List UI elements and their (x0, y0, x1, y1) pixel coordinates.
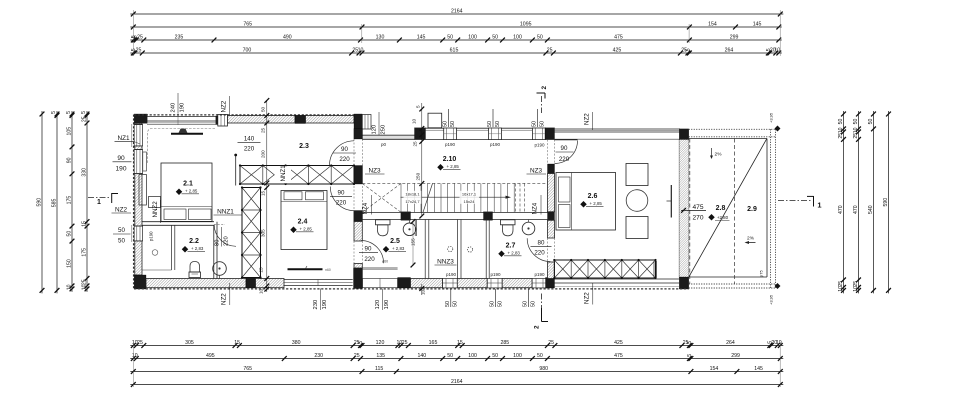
svg-text:17x24,7: 17x24,7 (405, 199, 420, 204)
svg-text:250: 250 (416, 172, 421, 180)
svg-text:10: 10 (853, 127, 859, 133)
svg-text:1: 1 (817, 201, 821, 210)
svg-text:NNZ3: NNZ3 (437, 259, 454, 266)
svg-text:190: 190 (115, 166, 126, 173)
svg-text:25: 25 (853, 281, 859, 287)
svg-text:2.6: 2.6 (588, 193, 598, 200)
svg-text:140: 140 (244, 136, 255, 143)
svg-text:p75: p75 (759, 270, 764, 277)
svg-text:2%: 2% (747, 236, 755, 242)
svg-text:270: 270 (692, 214, 703, 221)
svg-text:10: 10 (838, 286, 844, 292)
svg-text:590: 590 (36, 198, 42, 207)
svg-text:475: 475 (614, 34, 623, 40)
svg-text:1: 1 (97, 199, 101, 206)
svg-text:50: 50 (523, 301, 529, 307)
svg-text:200: 200 (261, 150, 266, 158)
svg-text:+ 2,85: + 2,85 (447, 164, 460, 169)
svg-text:540: 540 (868, 205, 874, 214)
svg-text:NNZ1: NNZ1 (217, 209, 234, 216)
svg-text:50: 50 (532, 121, 538, 127)
svg-text:16x17,1: 16x17,1 (462, 192, 477, 197)
svg-text:470: 470 (838, 205, 844, 214)
svg-text:25: 25 (137, 340, 143, 346)
svg-text:190: 190 (322, 300, 328, 310)
svg-text:2: 2 (541, 86, 548, 90)
svg-text:240: 240 (171, 103, 177, 113)
svg-text:495: 495 (206, 353, 215, 359)
svg-text:220: 220 (224, 236, 230, 246)
svg-text:120: 120 (375, 300, 381, 310)
svg-text:2.1: 2.1 (183, 181, 193, 188)
svg-text:425: 425 (614, 340, 623, 346)
svg-text:25: 25 (81, 279, 87, 285)
svg-text:50: 50 (868, 119, 874, 125)
svg-text:+ 2,83: + 2,83 (392, 246, 405, 251)
svg-text:90: 90 (561, 145, 568, 152)
svg-text:154: 154 (710, 366, 719, 372)
svg-text:10: 10 (838, 127, 844, 133)
svg-text:50: 50 (492, 353, 498, 359)
svg-text:NNZ2: NNZ2 (152, 201, 159, 218)
svg-text:25: 25 (261, 127, 266, 133)
svg-text:50: 50 (118, 227, 125, 234)
svg-text:5: 5 (416, 105, 421, 108)
svg-text:25: 25 (402, 340, 408, 346)
svg-text:10: 10 (259, 288, 264, 294)
svg-text:330: 330 (81, 168, 87, 177)
svg-text:1095: 1095 (520, 21, 532, 27)
svg-text:2: 2 (534, 325, 541, 329)
svg-text:25: 25 (354, 353, 360, 359)
svg-text:+ 2,85: + 2,85 (300, 227, 313, 232)
svg-text:+ 2,83: + 2,83 (508, 251, 521, 256)
svg-text:90: 90 (365, 246, 372, 253)
svg-text:264: 264 (725, 47, 734, 53)
svg-text:2.10: 2.10 (443, 156, 457, 163)
svg-text:10: 10 (66, 284, 72, 290)
svg-text:50: 50 (447, 353, 453, 359)
svg-text:50: 50 (66, 231, 72, 237)
svg-text:10: 10 (81, 284, 87, 290)
svg-text:25: 25 (853, 133, 859, 139)
svg-text:50: 50 (261, 106, 266, 112)
svg-text:250: 250 (381, 125, 387, 135)
svg-text:305: 305 (185, 340, 194, 346)
svg-text:5: 5 (687, 341, 693, 344)
svg-text:590: 590 (883, 198, 889, 207)
svg-text:120: 120 (376, 340, 385, 346)
svg-text:220: 220 (364, 256, 375, 263)
svg-text:p190: p190 (490, 272, 501, 277)
svg-text:p190: p190 (534, 143, 545, 148)
svg-text:50: 50 (537, 34, 543, 40)
svg-text:50: 50 (453, 301, 459, 307)
svg-text:+ 2,83: + 2,83 (191, 246, 204, 251)
svg-text:NZ3: NZ3 (530, 168, 543, 175)
svg-text:90: 90 (66, 157, 72, 163)
svg-text:299: 299 (730, 34, 739, 40)
svg-text:2.3: 2.3 (299, 143, 309, 150)
svg-text:615: 615 (450, 47, 459, 53)
svg-text:220: 220 (559, 156, 570, 163)
svg-text:154: 154 (708, 21, 717, 27)
svg-text:18x18,1: 18x18,1 (405, 192, 420, 197)
svg-text:50: 50 (118, 238, 125, 245)
svg-text:10: 10 (132, 353, 138, 359)
svg-text:235: 235 (175, 34, 184, 40)
svg-text:190: 190 (180, 103, 186, 113)
svg-text:90: 90 (117, 155, 125, 162)
svg-text:50: 50 (492, 34, 498, 40)
svg-text:50: 50 (445, 301, 451, 307)
svg-text:490: 490 (283, 34, 292, 40)
svg-text:130: 130 (376, 34, 385, 40)
svg-text:10: 10 (412, 118, 417, 124)
svg-text:5: 5 (686, 48, 692, 51)
svg-text:380: 380 (292, 340, 301, 346)
svg-text:25: 25 (547, 47, 553, 53)
svg-text:264: 264 (726, 340, 735, 346)
svg-text:80: 80 (538, 240, 545, 247)
svg-text:+3,95: +3,95 (769, 294, 774, 305)
svg-text:5: 5 (66, 111, 72, 114)
svg-text:475: 475 (692, 204, 703, 211)
svg-text:100: 100 (468, 353, 477, 359)
svg-text:15: 15 (261, 190, 266, 196)
svg-text:25: 25 (259, 267, 264, 273)
svg-text:585: 585 (51, 198, 57, 207)
svg-text:50: 50 (443, 121, 449, 127)
svg-text:2.9: 2.9 (747, 206, 757, 213)
svg-text:220: 220 (534, 250, 545, 257)
svg-text:220: 220 (244, 146, 255, 153)
svg-text:NZ2: NZ2 (584, 113, 591, 125)
svg-text:+ 2,85: + 2,85 (185, 189, 198, 194)
svg-text:50: 50 (495, 121, 501, 127)
svg-text:50: 50 (838, 119, 844, 125)
svg-text:25: 25 (548, 340, 554, 346)
svg-text:5: 5 (687, 354, 693, 357)
svg-text:p190: p190 (534, 272, 545, 277)
svg-text:15: 15 (457, 340, 463, 346)
svg-text:765: 765 (243, 21, 252, 27)
svg-text:135: 135 (376, 353, 385, 359)
svg-text:2.4: 2.4 (298, 219, 308, 226)
svg-text:115: 115 (375, 366, 383, 372)
svg-text:90: 90 (341, 146, 348, 153)
svg-text:305: 305 (261, 229, 266, 237)
svg-text:2.8: 2.8 (716, 205, 726, 212)
svg-text:105: 105 (66, 127, 72, 136)
svg-text:ø60: ø60 (382, 260, 388, 264)
svg-text:90: 90 (338, 190, 345, 197)
svg-text:2164: 2164 (451, 379, 463, 385)
svg-text:80: 80 (215, 240, 221, 246)
svg-text:50: 50 (447, 34, 453, 40)
svg-text:NZ2: NZ2 (221, 100, 228, 112)
svg-text:2.5: 2.5 (390, 238, 400, 245)
svg-text:+2,80: +2,80 (717, 215, 729, 220)
svg-text:50: 50 (490, 301, 496, 307)
svg-text:5: 5 (81, 111, 87, 114)
svg-text:285: 285 (500, 340, 509, 346)
svg-text:100: 100 (468, 34, 477, 40)
svg-text:165: 165 (429, 340, 438, 346)
svg-text:700: 700 (243, 47, 252, 53)
svg-text:NZ2: NZ2 (584, 292, 591, 304)
svg-text:145: 145 (753, 21, 762, 27)
svg-text:470: 470 (853, 205, 859, 214)
svg-text:2%: 2% (715, 152, 723, 158)
svg-text:25: 25 (413, 141, 418, 147)
svg-text:10: 10 (358, 47, 364, 53)
svg-text:25: 25 (137, 34, 143, 40)
svg-text:25: 25 (81, 116, 87, 122)
svg-text:10: 10 (853, 286, 859, 292)
svg-text:50: 50 (539, 121, 545, 127)
svg-text:15x24: 15x24 (464, 199, 476, 204)
svg-text:+ 2,85: + 2,85 (590, 201, 603, 206)
svg-text:p190: p190 (490, 142, 501, 147)
svg-text:NZ2: NZ2 (221, 293, 228, 305)
svg-text:220: 220 (336, 200, 347, 207)
svg-text:p190: p190 (446, 272, 457, 277)
svg-text:175: 175 (81, 248, 87, 257)
svg-text:50: 50 (530, 301, 536, 307)
svg-text:NZ4: NZ4 (532, 202, 539, 214)
svg-text:50: 50 (853, 119, 859, 125)
svg-text:p0: p0 (381, 142, 387, 147)
svg-text:140: 140 (417, 353, 426, 359)
svg-text:p190: p190 (149, 231, 154, 241)
svg-text:175: 175 (66, 196, 72, 205)
svg-text:10: 10 (774, 47, 780, 53)
svg-text:50: 50 (450, 121, 456, 127)
svg-text:25: 25 (838, 281, 844, 287)
svg-text:n60: n60 (325, 268, 331, 272)
svg-text:25: 25 (838, 133, 844, 139)
svg-text:230: 230 (314, 353, 323, 359)
svg-text:5: 5 (51, 111, 57, 114)
svg-text:220: 220 (339, 156, 350, 163)
svg-text:10: 10 (421, 289, 426, 295)
svg-text:299: 299 (731, 353, 740, 359)
svg-text:15: 15 (234, 340, 240, 346)
svg-text:15: 15 (81, 221, 87, 227)
svg-text:50: 50 (487, 121, 493, 127)
svg-text:150: 150 (66, 259, 72, 268)
svg-text:190: 190 (384, 300, 390, 310)
svg-text:425: 425 (613, 47, 622, 53)
svg-text:NZ4: NZ4 (362, 202, 369, 214)
svg-text:475: 475 (614, 353, 623, 359)
svg-text:NZ2: NZ2 (115, 207, 128, 214)
svg-text:100: 100 (513, 353, 522, 359)
svg-text:p190: p190 (445, 142, 456, 147)
svg-text:120: 120 (372, 125, 378, 135)
svg-text:230: 230 (313, 300, 319, 310)
svg-text:765: 765 (243, 366, 252, 372)
svg-text:NZ1: NZ1 (117, 135, 130, 142)
svg-text:NZ3: NZ3 (368, 168, 381, 175)
svg-text:2.7: 2.7 (506, 243, 516, 250)
svg-text:10: 10 (776, 340, 782, 346)
svg-text:50: 50 (537, 353, 543, 359)
svg-text:50: 50 (497, 301, 503, 307)
svg-text:NNZ1: NNZ1 (280, 165, 287, 182)
svg-text:5: 5 (358, 341, 364, 344)
svg-text:+3,95: +3,95 (769, 112, 774, 123)
svg-text:100: 100 (513, 34, 522, 40)
svg-text:2164: 2164 (451, 8, 463, 14)
svg-text:980: 980 (539, 366, 548, 372)
svg-text:2.2: 2.2 (189, 238, 199, 245)
svg-text:145: 145 (754, 366, 763, 372)
svg-text:145: 145 (417, 34, 426, 40)
svg-text:25: 25 (136, 47, 142, 53)
